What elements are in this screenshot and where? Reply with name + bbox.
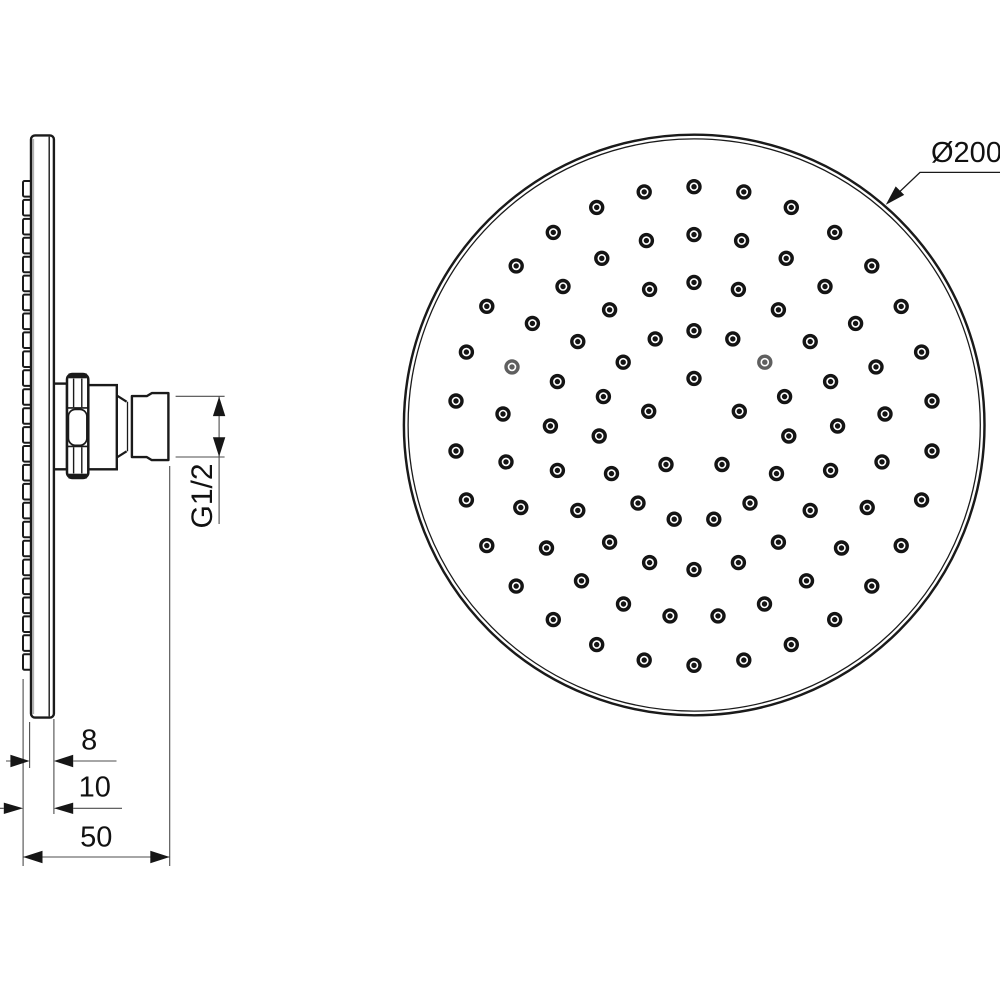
svg-text:Ø200: Ø200: [931, 137, 1000, 169]
svg-text:50: 50: [80, 822, 112, 854]
svg-text:G1/2: G1/2: [186, 463, 219, 528]
svg-text:8: 8: [81, 725, 97, 757]
svg-text:10: 10: [79, 771, 111, 803]
